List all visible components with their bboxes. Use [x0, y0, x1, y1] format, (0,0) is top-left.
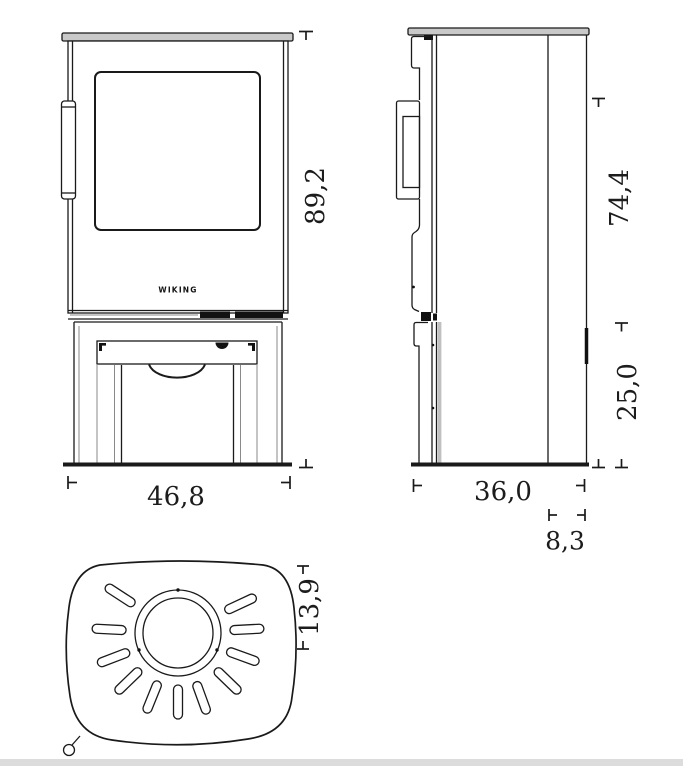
dim-label-side-upper-height: 74,4 [605, 169, 635, 227]
side-handle [397, 101, 420, 199]
dim-side-depth: 36,0 [414, 477, 585, 507]
front-view: WIKING [62, 33, 294, 465]
dim-tick [549, 509, 585, 521]
dim-label-top-flue-offset: 13,9 [295, 578, 325, 636]
flue-ring-dot-right [215, 648, 218, 651]
side-base-pin-2 [432, 407, 435, 410]
drawing-svg: WIKING [0, 0, 683, 766]
stove-dimension-drawing: WIKING [0, 0, 683, 766]
side-base-front-edge [414, 323, 428, 465]
dim-label-front-width: 46,8 [147, 482, 205, 512]
side-door-pin [412, 286, 415, 289]
flue-collar-inner [143, 598, 213, 668]
dim-label-side-lower-height: 25,0 [613, 363, 643, 421]
handle-knob [64, 745, 75, 756]
side-base-pin-1 [432, 344, 435, 347]
scan-artifact-strip [0, 759, 683, 766]
brand-logo-text: WIKING [158, 286, 197, 295]
front-base [74, 322, 282, 463]
dim-side-lower-height: 25,0 [613, 323, 643, 468]
dim-front-height: 89,2 [299, 32, 331, 468]
top-view [64, 561, 297, 756]
dim-label-front-height: 89,2 [301, 167, 331, 225]
base-opening-bar [97, 341, 257, 364]
dim-label-side-depth: 36,0 [474, 477, 532, 507]
front-door-handle [62, 101, 76, 199]
side-top-plate [408, 28, 589, 35]
front-top-plate [62, 33, 293, 41]
dim-label-flue-offset: 8,3 [545, 527, 585, 556]
side-door-lower-edge [412, 199, 420, 312]
dim-top-flue-offset: 13,9 [295, 566, 325, 649]
flue-ring-dot-top [176, 588, 179, 591]
base-arc-detail [149, 365, 205, 378]
side-door-top-bracket [412, 37, 431, 101]
side-door-bottom-detail-2 [433, 314, 437, 321]
side-base-shadow [438, 322, 442, 464]
dim-flue-offset: 8,3 [545, 509, 585, 556]
side-view [397, 28, 590, 465]
front-door-window [95, 72, 260, 230]
dim-front-width: 46,8 [68, 476, 290, 512]
handle-stem [72, 736, 80, 745]
dim-tick [592, 99, 605, 468]
dim-tick [299, 32, 313, 468]
flue-ring-dot-left [137, 648, 140, 651]
side-door-bottom-detail [421, 312, 431, 321]
